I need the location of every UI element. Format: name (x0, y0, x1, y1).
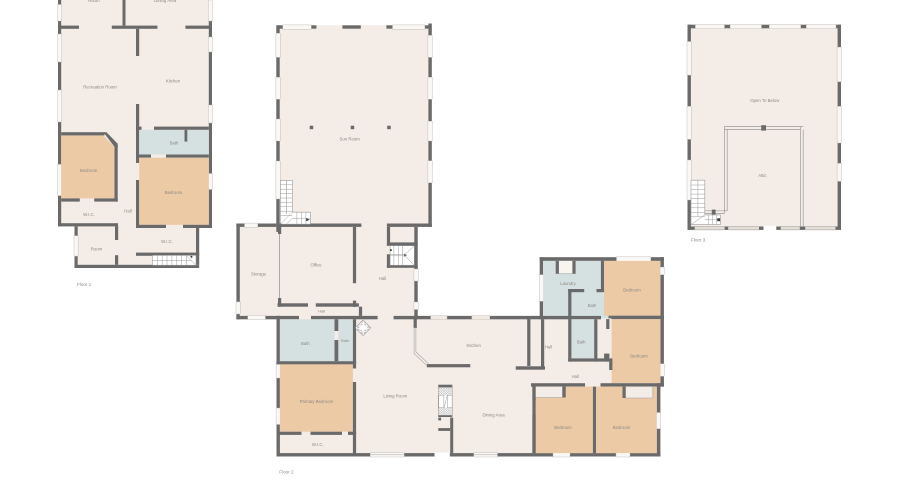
svg-text:Floor 1: Floor 1 (77, 282, 92, 287)
svg-text:Hall: Hall (318, 308, 325, 313)
svg-text:Kitchen: Kitchen (166, 79, 181, 84)
svg-text:Dining Area: Dining Area (154, 0, 177, 3)
svg-text:Open To Below: Open To Below (750, 98, 780, 103)
svg-text:Bath: Bath (170, 141, 179, 146)
svg-text:Hall: Hall (545, 345, 552, 350)
svg-text:Hall: Hall (379, 276, 386, 281)
svg-text:Floor 2: Floor 2 (279, 470, 294, 475)
svg-text:Kitchen: Kitchen (467, 343, 482, 348)
svg-text:Storage: Storage (251, 272, 267, 277)
svg-text:Room: Room (91, 247, 103, 252)
svg-text:Bedroom: Bedroom (630, 354, 648, 359)
svg-text:Recreation Room: Recreation Room (83, 85, 117, 90)
svg-text:Bedroom: Bedroom (613, 425, 631, 430)
svg-text:Bath: Bath (588, 303, 597, 308)
svg-text:Bedroom: Bedroom (80, 168, 98, 173)
svg-text:W.I.C.: W.I.C. (83, 212, 95, 217)
svg-text:Bedroom: Bedroom (554, 425, 572, 430)
svg-text:Bedroom: Bedroom (623, 288, 641, 293)
svg-text:Bath: Bath (577, 340, 586, 345)
svg-text:Living Room: Living Room (383, 394, 407, 399)
svg-text:Laundry: Laundry (560, 281, 576, 286)
svg-text:W.I.C.: W.I.C. (312, 442, 324, 447)
svg-text:Dining Area: Dining Area (482, 413, 505, 418)
svg-text:Room: Room (88, 0, 100, 3)
svg-text:Bath: Bath (301, 341, 310, 346)
svg-text:W.I.C.: W.I.C. (161, 239, 173, 244)
svg-text:Attic: Attic (758, 173, 767, 178)
svg-text:Primary Bedroom: Primary Bedroom (300, 399, 334, 404)
svg-text:Bath: Bath (341, 338, 349, 343)
svg-text:Hall: Hall (124, 209, 131, 214)
svg-text:Sun Room: Sun Room (340, 137, 361, 142)
svg-text:Office: Office (311, 263, 323, 268)
svg-text:Bedroom: Bedroom (165, 190, 183, 195)
svg-text:Floor 3: Floor 3 (691, 238, 706, 243)
svg-text:Hall: Hall (572, 374, 579, 379)
